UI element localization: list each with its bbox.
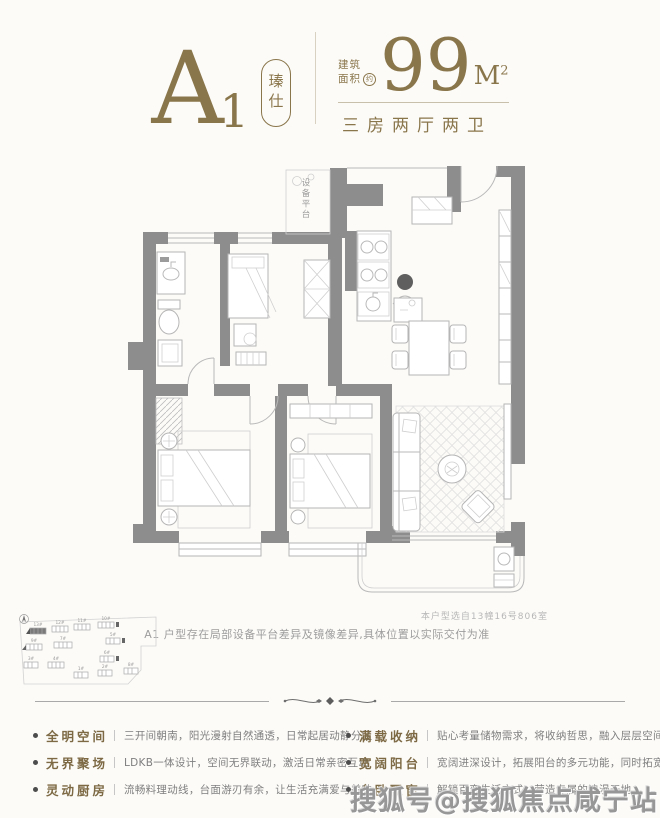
feature-bullet xyxy=(346,733,351,738)
site-plan-svg: 13# 12# 11# 10# 9# xyxy=(14,612,164,697)
area-row: 建筑 面积 约 99 M2 xyxy=(338,38,509,93)
svg-text:1#: 1# xyxy=(78,666,85,672)
svg-text:7#: 7# xyxy=(60,636,67,642)
coffee-table xyxy=(438,455,466,483)
bedroom-west-door-arc xyxy=(250,396,278,424)
feature-separator xyxy=(114,730,115,741)
area-unit: M2 xyxy=(474,63,509,89)
plan-id: A 1 瑧仕 xyxy=(151,26,291,130)
plan-caption: 本户型选自13幢16号806室 xyxy=(100,609,548,622)
area-prefix-line2: 面积 xyxy=(338,73,361,86)
bed-south xyxy=(290,454,370,508)
closet-strip xyxy=(290,404,372,418)
nightstand xyxy=(291,438,305,452)
feature-bullet xyxy=(33,787,38,792)
svg-text:8#: 8# xyxy=(128,662,135,668)
brand-badge-label: 瑧仕 xyxy=(265,73,286,113)
poster-page: A 1 瑧仕 建筑 面积 约 99 M2 三房两厅两卫 xyxy=(0,0,660,818)
building-block: 8# xyxy=(124,662,138,674)
dining-set xyxy=(392,321,466,375)
bedroom-west xyxy=(156,398,250,528)
bathroom-vanity xyxy=(157,252,185,294)
building-block: 6# xyxy=(100,650,119,662)
equipment-platform-label: 设备平台 xyxy=(299,178,311,232)
area-prefix: 建筑 面积 约 xyxy=(338,59,376,85)
area-prefix-line1: 建筑 xyxy=(338,59,376,72)
building-block: 3# xyxy=(24,656,38,668)
ornament-divider xyxy=(35,694,625,708)
bay-windows xyxy=(179,543,366,556)
building-block: 4# xyxy=(48,656,64,668)
washing-machine xyxy=(494,547,514,571)
features-left: 全明空间 三开间朝南，阳光漫射自然通透，日常起居动静分区 无界聚场 LDKB一体… xyxy=(0,722,330,803)
svg-text:11#: 11# xyxy=(77,618,86,624)
layout-type: 三房两厅两卫 xyxy=(338,111,509,136)
balcony xyxy=(358,536,524,592)
feature-label: 宽阔阳台 xyxy=(359,753,421,772)
tv-console xyxy=(504,404,511,499)
watermark: 搜狐号@搜狐焦点咸宁站 xyxy=(350,779,658,818)
area-value: 99 xyxy=(380,38,472,93)
balcony-cabinet xyxy=(494,574,514,587)
svg-text:12#: 12# xyxy=(55,620,64,626)
feature-desc: 贴心考量储物需求，将收纳哲思，融入层层空间设计 xyxy=(437,728,660,743)
feature-bullet xyxy=(346,760,351,765)
bathroom-door-arc xyxy=(188,358,214,384)
building-block: 9# xyxy=(22,638,42,650)
living-room xyxy=(393,404,511,532)
entry-closet xyxy=(499,210,511,384)
feature-label: 无界聚场 xyxy=(46,753,108,772)
building-block: 12# xyxy=(52,620,68,632)
feature-item: 宽阔阳台 宽阔进深设计，拓展阳台的多元功能，同时拓宽视界 xyxy=(346,749,660,776)
feature-separator xyxy=(427,757,428,768)
building-block: 1# xyxy=(74,666,88,678)
feature-label: 全明空间 xyxy=(46,726,108,745)
feature-item: 无界聚场 LDKB一体设计，空间无界联动，激活日常亲密互动 xyxy=(33,749,330,776)
svg-text:10#: 10# xyxy=(101,616,110,622)
bathroom xyxy=(157,252,214,384)
svg-text:2#: 2# xyxy=(102,664,109,670)
feature-separator xyxy=(427,730,428,741)
svg-text:4#: 4# xyxy=(53,656,60,662)
wardrobe-x xyxy=(304,260,330,318)
feature-bullet xyxy=(33,733,38,738)
plan-letter: A xyxy=(151,48,223,130)
feature-item: 灵动厨房 流畅料理动线，台面游刃有余，让生活充满爱与美味 xyxy=(33,776,330,803)
ornament-motif xyxy=(275,694,385,708)
upper-cabinet xyxy=(412,197,452,224)
floorplan-svg xyxy=(100,154,560,606)
site-plan: 13# 12# 11# 10# 9# xyxy=(14,612,164,701)
entry-door-arc xyxy=(461,166,497,202)
toilet xyxy=(158,300,180,334)
building-block: 10# xyxy=(98,616,119,628)
feature-label: 满载收纳 xyxy=(359,726,421,745)
feature-item: 满载收纳 贴心考量储物需求，将收纳哲思，融入层层空间设计 xyxy=(346,722,660,749)
feature-desc: 宽阔进深设计，拓展阳台的多元功能，同时拓宽视界 xyxy=(437,755,660,770)
building-block: 5# xyxy=(106,632,125,644)
bed-north xyxy=(228,254,276,318)
building-block: 7# xyxy=(54,636,72,648)
header: A 1 瑧仕 建筑 面积 约 99 M2 三房两厅两卫 xyxy=(0,26,660,136)
bed-west xyxy=(158,450,250,506)
brand-badge: 瑧仕 xyxy=(261,59,291,127)
bedroom-north xyxy=(228,254,330,365)
feature-item: 全明空间 三开间朝南，阳光漫射自然通透，日常起居动静分区 xyxy=(33,722,330,749)
area-specs: 建筑 面积 约 99 M2 三房两厅两卫 xyxy=(338,26,509,136)
svg-text:9#: 9# xyxy=(31,638,38,644)
feature-label: 灵动厨房 xyxy=(46,780,108,799)
svg-text:3#: 3# xyxy=(28,656,35,662)
svg-text:6#: 6# xyxy=(104,650,111,656)
shower-cabinet xyxy=(158,340,182,366)
building-block: 13# xyxy=(26,622,46,634)
svg-text:13#: 13# xyxy=(33,622,42,628)
feature-bullet xyxy=(33,760,38,765)
floorplan: 设备平台 xyxy=(100,154,560,606)
dresser xyxy=(236,352,266,365)
bedroom-south xyxy=(290,404,372,528)
sofa xyxy=(393,413,420,531)
area-approx-circle: 约 xyxy=(363,73,376,86)
feature-separator xyxy=(114,784,115,795)
desk-chair xyxy=(234,324,256,346)
building-block: 2# xyxy=(98,664,112,676)
person-figure xyxy=(393,274,422,322)
feature-separator xyxy=(114,757,115,768)
nightstand xyxy=(291,510,305,524)
plan-number: 1 xyxy=(220,93,249,130)
header-divider xyxy=(315,32,316,124)
svg-text:5#: 5# xyxy=(110,632,117,638)
